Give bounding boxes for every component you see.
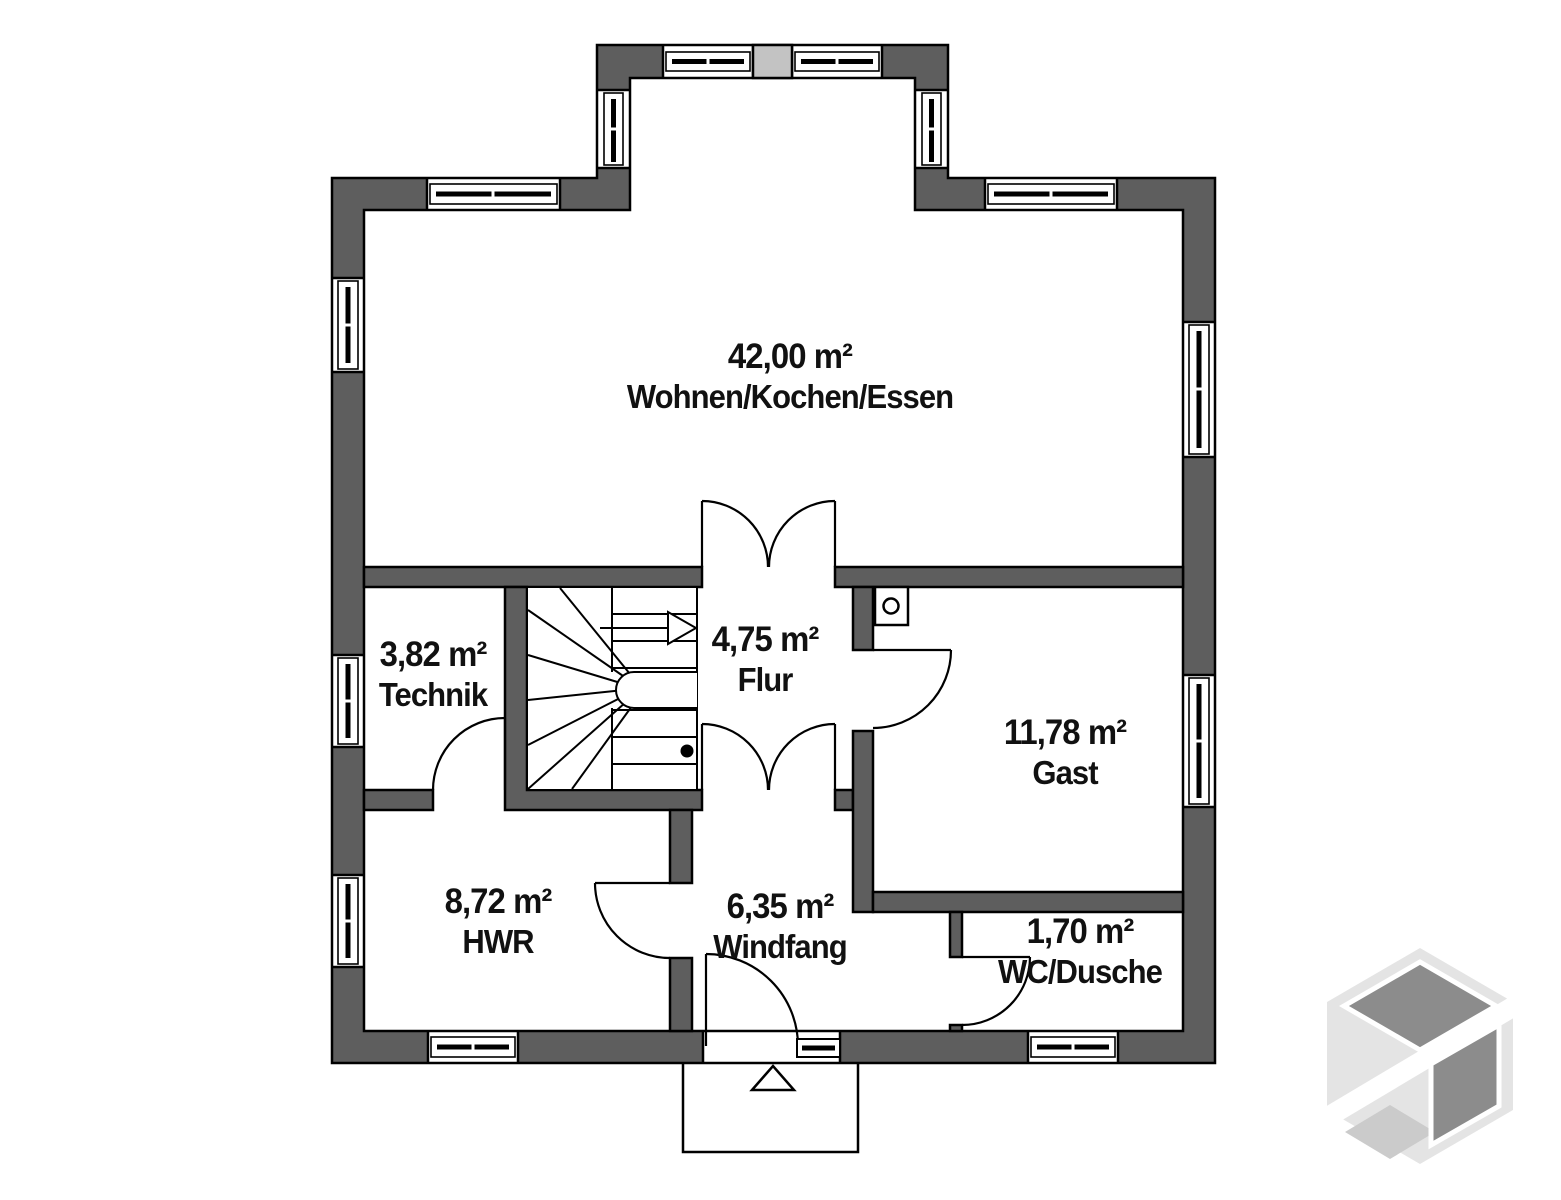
wall-technik-hwr-left xyxy=(364,790,433,810)
window-bottom-hwr xyxy=(431,1037,515,1057)
room-name: Flur xyxy=(712,660,819,700)
room-name: Wohnen/Kochen/Essen xyxy=(627,377,953,417)
window-left-wohnen xyxy=(338,281,358,369)
stair-void xyxy=(616,672,697,708)
wall-hwr-windfang-upper xyxy=(670,810,692,883)
room-name: Technik xyxy=(379,675,487,715)
chimney-block xyxy=(753,45,792,78)
wall-flur-gast-lower xyxy=(853,731,873,912)
room-name: WC/Dusche xyxy=(998,952,1162,992)
window-top-right xyxy=(988,184,1114,204)
window-bottom-wc xyxy=(1031,1037,1115,1057)
window-bay-right xyxy=(922,93,941,165)
room-label-technik: 3,82 m² Technik xyxy=(379,635,487,715)
room-name: Gast xyxy=(1004,753,1126,793)
room-label-gast: 11,78 m² Gast xyxy=(1004,713,1126,793)
room-label-flur: 4,75 m² Flur xyxy=(712,620,819,700)
room-area: 1,70 m² xyxy=(998,912,1162,952)
room-area: 42,00 m² xyxy=(627,337,953,377)
room-label-windfang: 6,35 m² Windfang xyxy=(713,887,846,967)
entrance-arrow-triangle xyxy=(752,1066,794,1090)
window-left-hwr xyxy=(338,878,358,964)
double-door-wohnen-flur xyxy=(702,501,835,567)
wall-hwr-windfang-lower xyxy=(670,958,692,1031)
room-area: 8,72 m² xyxy=(445,882,552,922)
room-name: HWR xyxy=(445,922,552,962)
door-gast xyxy=(873,650,951,728)
flue-symbol xyxy=(875,587,908,625)
floor-plan-drawing xyxy=(0,0,1561,1200)
window-left-technik xyxy=(338,658,358,744)
room-area: 3,82 m² xyxy=(379,635,487,675)
door-hwr xyxy=(595,883,670,958)
stair-start-dot xyxy=(681,745,694,758)
entrance-side-panel xyxy=(797,1039,840,1057)
room-area: 11,78 m² xyxy=(1004,713,1126,753)
door-technik xyxy=(433,718,505,790)
wall-wohnen-technik xyxy=(364,567,702,587)
brand-logo-watermark xyxy=(1316,948,1526,1164)
window-bay-top-right xyxy=(795,52,879,71)
wall-flur-stub xyxy=(835,790,853,810)
window-right-wohnen xyxy=(1189,325,1209,454)
room-label-wc: 1,70 m² WC/Dusche xyxy=(998,912,1162,992)
wall-gast-wc xyxy=(873,892,1183,912)
room-area: 6,35 m² xyxy=(713,887,846,927)
room-area: 4,75 m² xyxy=(712,620,819,660)
window-right-gast xyxy=(1189,678,1209,804)
wall-windfang-wc-upper xyxy=(950,912,962,957)
staircase xyxy=(527,587,697,790)
wall-wohnen-gast xyxy=(835,567,1183,587)
floor-plan-page: 42,00 m² Wohnen/Kochen/Essen 3,82 m² Tec… xyxy=(0,0,1561,1200)
room-label-wohnen: 42,00 m² Wohnen/Kochen/Essen xyxy=(627,337,953,417)
room-name: Windfang xyxy=(713,927,846,967)
window-top-left xyxy=(430,184,557,204)
wall-windfang-wc-lower xyxy=(950,1025,962,1031)
wall-flur-gast-upper xyxy=(853,587,873,650)
room-label-hwr: 8,72 m² HWR xyxy=(445,882,552,962)
window-bay-left xyxy=(604,93,623,165)
window-bay-top-left xyxy=(666,52,750,71)
double-door-flur-windfang xyxy=(702,724,835,790)
